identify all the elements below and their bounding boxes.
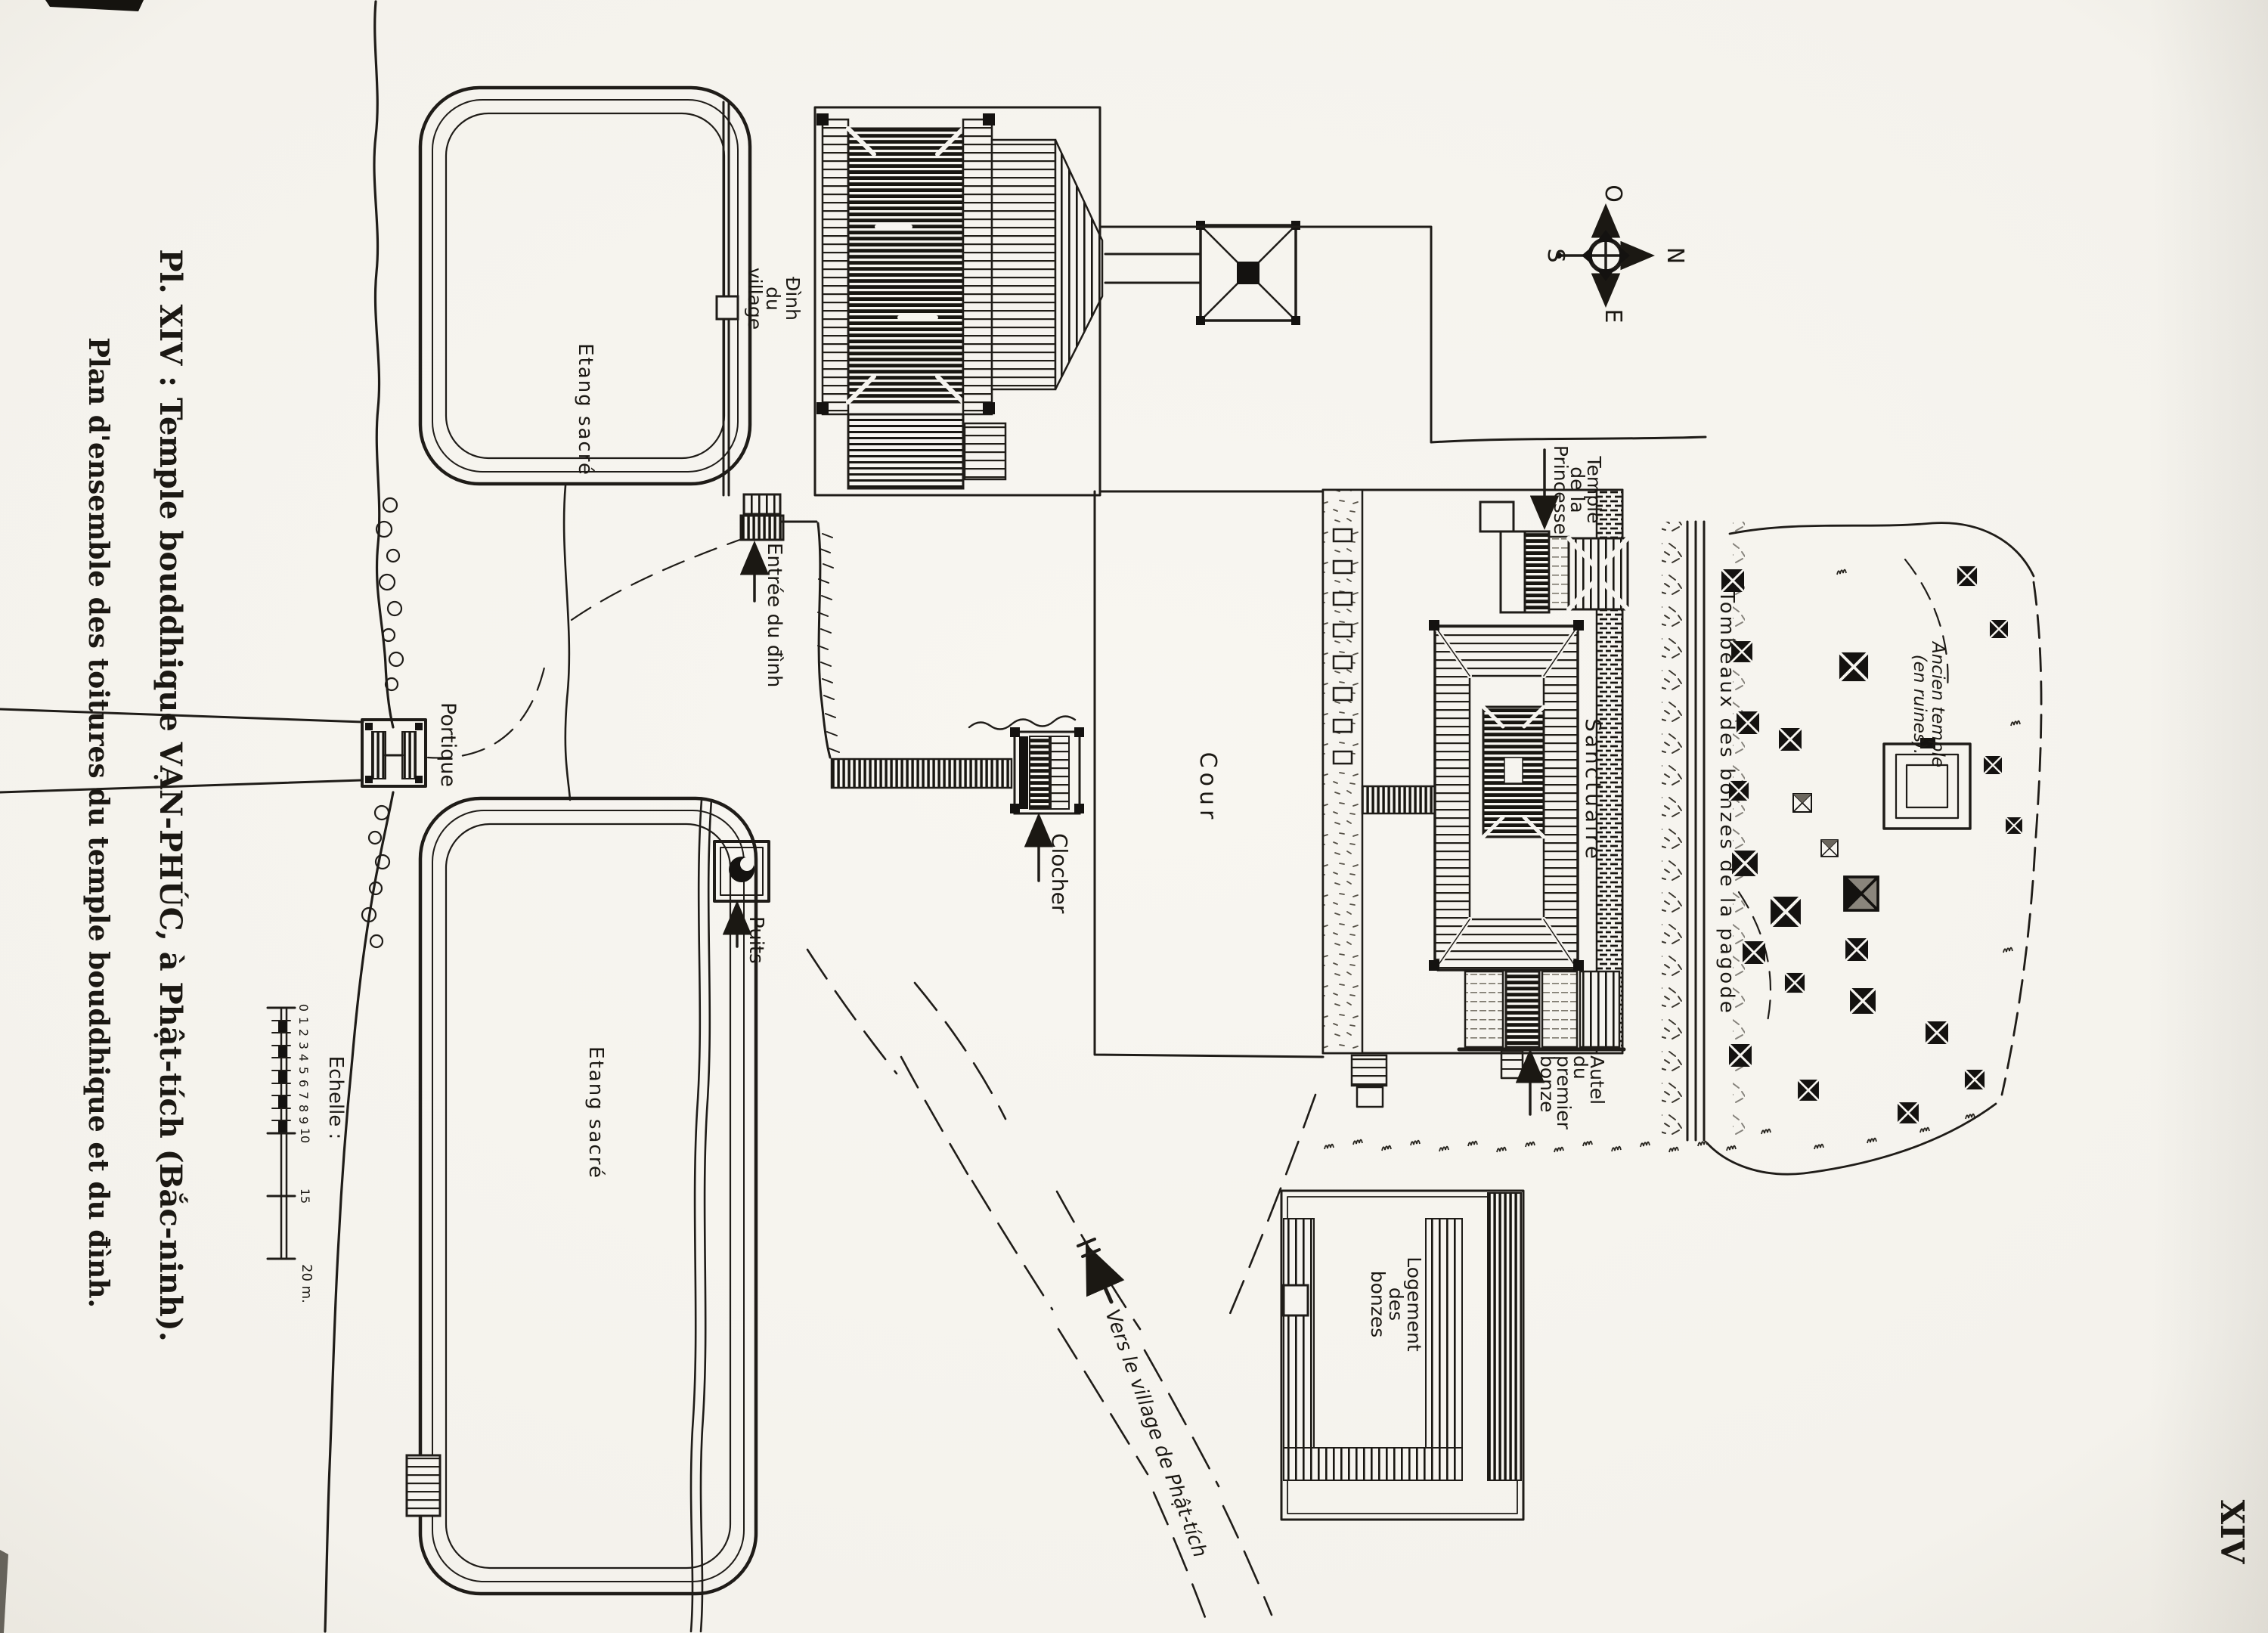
sanctuaire-label: Sanctuaire bbox=[1581, 718, 1606, 862]
puits-label: Puits bbox=[745, 916, 767, 964]
autel-label-4: bonze bbox=[1536, 1055, 1558, 1113]
princesse-label-3: Princesse bbox=[1550, 445, 1572, 535]
south-steps bbox=[1352, 1055, 1387, 1086]
plate-title-line2: Plan d'ensemble des toitures du temple b… bbox=[82, 337, 114, 1308]
dinh-south-annex bbox=[848, 414, 1005, 488]
scale-tick-4: 4 bbox=[296, 1054, 311, 1061]
scale-end-label: 20 m. bbox=[299, 1264, 314, 1303]
scale-tick-2: 2 bbox=[296, 1029, 311, 1037]
compass-north: N bbox=[1662, 247, 1688, 264]
scale-tick-8: 8 bbox=[296, 1105, 311, 1112]
plate-number: XIV bbox=[2214, 1500, 2251, 1565]
sanctuaire bbox=[1429, 620, 1584, 971]
scale-tick-15: 15 bbox=[298, 1188, 312, 1204]
scale-tick-10: 10 bbox=[298, 1128, 312, 1143]
compass-east: E bbox=[1600, 309, 1626, 324]
dinh-label-1: Đình bbox=[782, 277, 804, 321]
site-plan-svg: Etang sacré Etang sacré Portique Đình bbox=[0, 0, 2268, 1633]
scale-tick-0: 0 bbox=[296, 1004, 311, 1012]
entree-label: Entrée du đình bbox=[763, 543, 785, 687]
ancien-label-2: (en ruines). bbox=[1910, 655, 1929, 755]
compass-west: O bbox=[1600, 184, 1626, 203]
pond-bottom-label: Etang sacré bbox=[584, 1046, 607, 1179]
cour-label: Cour bbox=[1194, 752, 1221, 824]
scale-tick-3: 3 bbox=[296, 1042, 311, 1049]
gravel-path bbox=[1323, 490, 1362, 1053]
clocher-label: Clocher bbox=[1047, 833, 1072, 914]
plate-title-line1: Pl. XIV : Temple bouddhique VẠN-PHÚC, à … bbox=[153, 249, 188, 1341]
dinh-west-gate bbox=[717, 296, 738, 319]
scale-label: Echelle : bbox=[324, 1056, 347, 1140]
page-edge-shadow bbox=[2147, 0, 2268, 1633]
scale-tick-9: 9 bbox=[296, 1117, 311, 1124]
scale-tick-7: 7 bbox=[296, 1092, 311, 1099]
pond-top-label: Etang sacré bbox=[574, 343, 596, 476]
portique-label: Portique bbox=[436, 702, 460, 787]
scale-tick-6: 6 bbox=[296, 1080, 311, 1087]
stone-texture-west bbox=[1662, 522, 1684, 1140]
dinh-main-hall bbox=[816, 113, 995, 414]
dinh-label-3: village bbox=[744, 268, 766, 330]
clocher-walkway bbox=[832, 759, 1012, 788]
pond-steps bbox=[407, 1455, 440, 1516]
plate-page: Etang sacré Etang sacré Portique Đình bbox=[0, 0, 2268, 1633]
ancien-label-1: Ancien temple bbox=[1928, 640, 1947, 767]
sanctuaire-walkway bbox=[1362, 786, 1436, 813]
logement-window bbox=[1284, 1285, 1308, 1315]
logement-label-3: bonzes bbox=[1367, 1271, 1389, 1338]
compass-south: S bbox=[1542, 248, 1569, 262]
scale-tick-5: 5 bbox=[296, 1067, 311, 1074]
scale-tick-1: 1 bbox=[296, 1017, 311, 1024]
